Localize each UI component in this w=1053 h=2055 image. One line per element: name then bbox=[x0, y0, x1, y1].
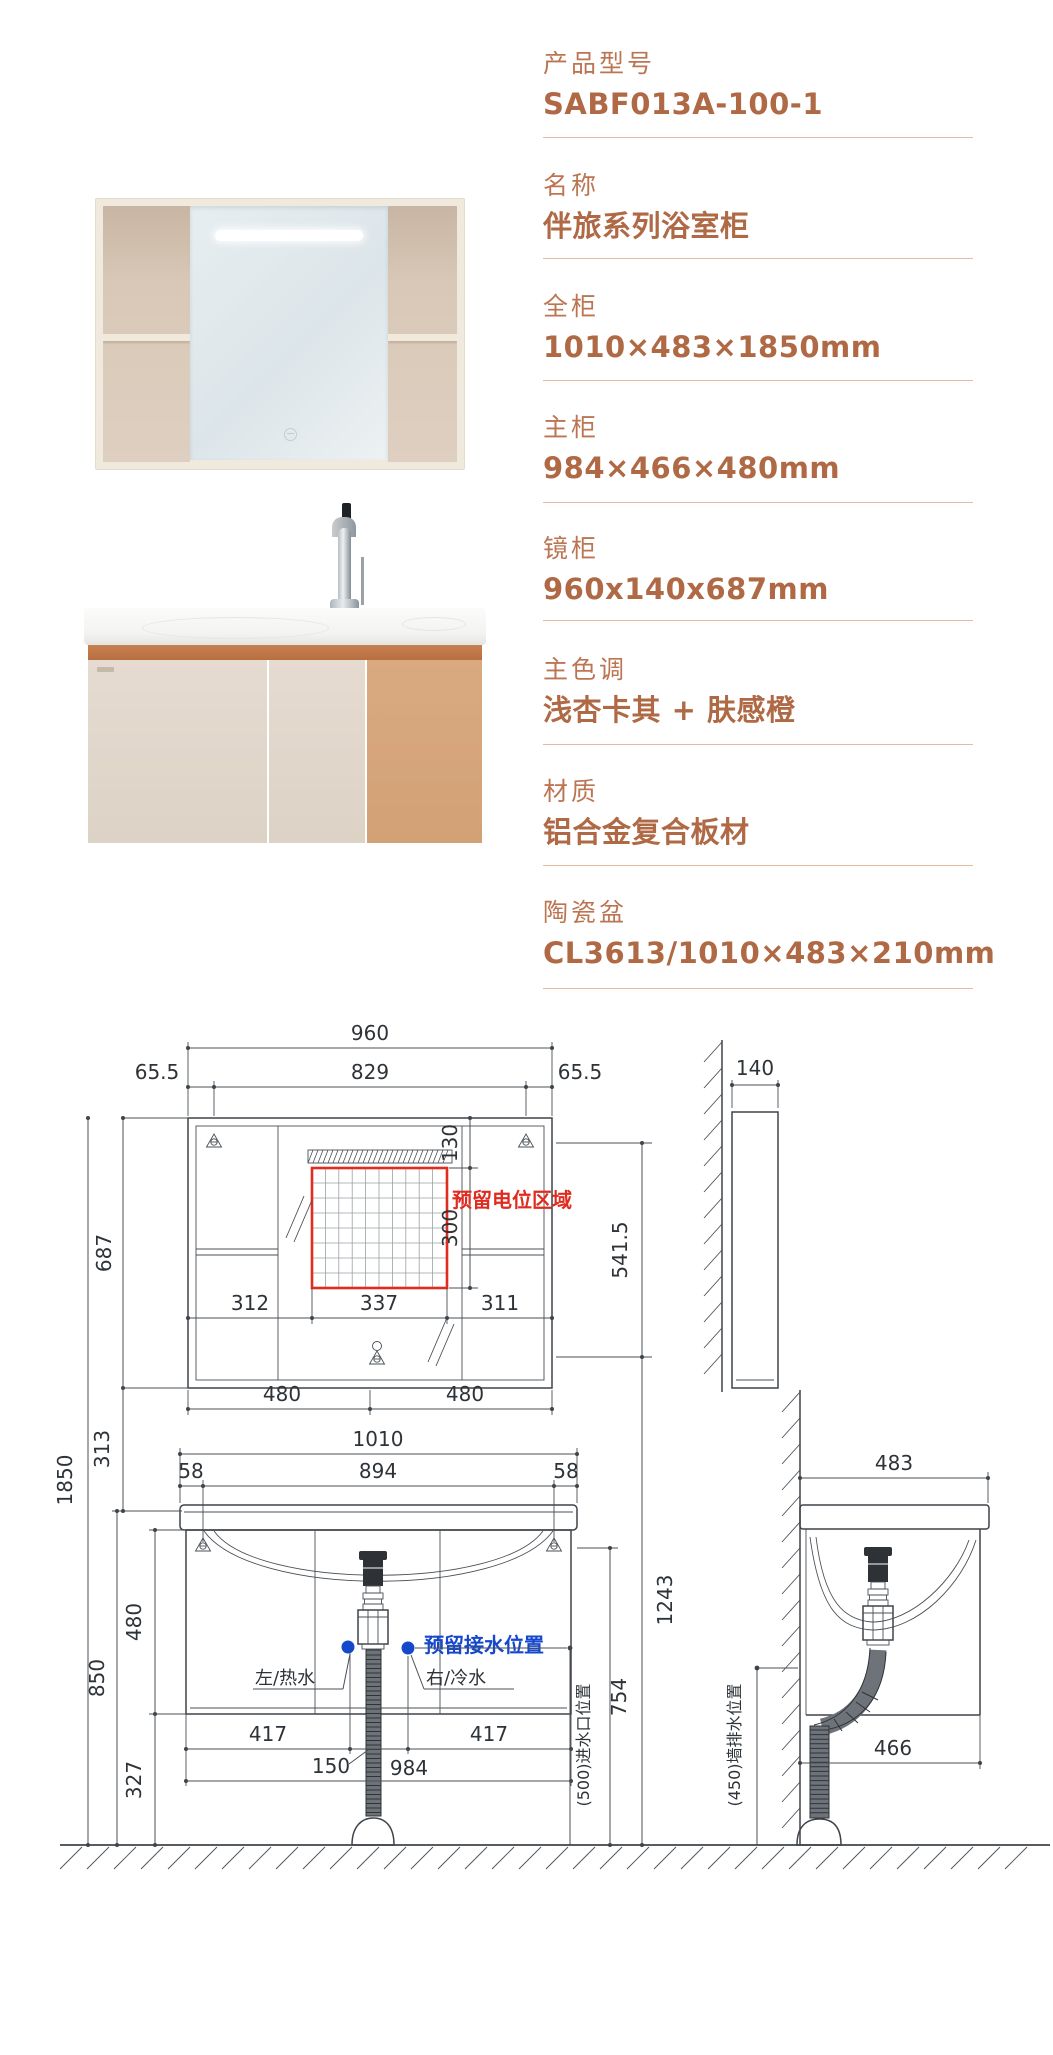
drain-assembly bbox=[863, 1547, 893, 1645]
mirror-cabinet-photo bbox=[95, 198, 465, 470]
spec-row-mirror-size: 镜柜 960x140x687mm bbox=[543, 535, 973, 621]
spec-label: 产品型号 bbox=[543, 50, 973, 79]
dim-bracket-left: 65.5 bbox=[135, 1060, 180, 1084]
dim-gap: 313 bbox=[90, 1430, 114, 1468]
wall-drain-label: (450)墙排水位置 bbox=[725, 1683, 744, 1806]
spec-value: 浅杏卡其 + 肤感橙 bbox=[543, 694, 973, 727]
spec-row-basin: 陶瓷盆 CL3613/1010×483×210mm bbox=[543, 899, 973, 989]
spec-label: 主色调 bbox=[543, 656, 973, 685]
dim-side-depth-bottom: 466 bbox=[874, 1736, 912, 1760]
spec-row-main-size: 主柜 984×466×480mm bbox=[543, 414, 973, 503]
mount-bracket-icon bbox=[207, 1134, 222, 1147]
inlet-position-label: (500)进水口位置 bbox=[574, 1683, 593, 1806]
spec-value: 铝合金复合板材 bbox=[543, 816, 973, 849]
vanity-side-view: 483 466 bbox=[782, 1390, 990, 1845]
reserved-electrical-zone bbox=[312, 1168, 447, 1288]
dim-seg-mid: 337 bbox=[360, 1291, 398, 1315]
product-spec-page: { "specs": { "accent": "#B4704E", "rows"… bbox=[0, 0, 1053, 2055]
vanity-front-view: 1010 58 894 58 左/热水 右/冷水 预留接水位置 bbox=[85, 1388, 798, 1847]
basin-outline bbox=[142, 617, 329, 639]
mirror-front-view bbox=[188, 1118, 552, 1388]
spec-label: 材质 bbox=[543, 778, 973, 807]
dim-outlet-height: 754 bbox=[607, 1678, 631, 1716]
mirror-led-light bbox=[215, 230, 363, 241]
dim-margin-right: 58 bbox=[553, 1459, 578, 1483]
dim-side-depth-top: 483 bbox=[875, 1451, 913, 1475]
faucet-body bbox=[338, 528, 351, 610]
spec-label: 名称 bbox=[543, 172, 973, 201]
brand-logo bbox=[97, 667, 114, 672]
dim-drain-offset: 150 bbox=[312, 1754, 350, 1778]
cold-water-label: 右/冷水 bbox=[426, 1668, 486, 1689]
mirror-left-shelves bbox=[103, 206, 190, 462]
hot-water-label: 左/热水 bbox=[255, 1668, 315, 1689]
spec-row-color: 主色调 浅杏卡其 + 肤感橙 bbox=[543, 656, 973, 745]
door-left bbox=[88, 660, 267, 843]
dim-half-left: 480 bbox=[263, 1382, 301, 1406]
cold-water-point bbox=[402, 1642, 415, 1655]
spec-value: 1010×483×1850mm bbox=[543, 331, 973, 364]
ceramic-countertop bbox=[84, 608, 486, 645]
hot-water-point bbox=[342, 1641, 355, 1654]
dim-led-gap: 130 bbox=[438, 1124, 462, 1162]
dim-mirror-height: 687 bbox=[92, 1234, 116, 1272]
floor-line bbox=[60, 1845, 1050, 1869]
vanity-cabinet-photo bbox=[80, 495, 490, 850]
spec-value: CL3613/1010×483×210mm bbox=[543, 937, 973, 970]
dim-body-width: 984 bbox=[390, 1756, 428, 1780]
dim-bracket-right: 65.5 bbox=[558, 1060, 603, 1084]
mirror-door bbox=[190, 206, 388, 460]
dim-mirror-depth: 140 bbox=[736, 1056, 774, 1080]
dim-drop: 541.5 bbox=[608, 1221, 632, 1278]
dim-foot-left: 417 bbox=[249, 1722, 287, 1746]
dim-mirror-width: 960 bbox=[351, 1021, 389, 1045]
dim-cabinet-height: 480 bbox=[122, 1603, 146, 1641]
dim-seg-right: 311 bbox=[481, 1291, 519, 1315]
dim-total-height: 1850 bbox=[53, 1455, 77, 1506]
dim-riser-height: 1243 bbox=[653, 1575, 677, 1626]
spec-value: SABF013A-100-1 bbox=[543, 88, 973, 121]
dim-counter-height: 850 bbox=[85, 1659, 109, 1697]
door-right-orange bbox=[367, 660, 482, 843]
dim-margin-left: 58 bbox=[178, 1459, 203, 1483]
mirror-right-shelves bbox=[388, 206, 457, 462]
spec-row-name: 名称 伴旅系列浴室柜 bbox=[543, 172, 973, 259]
reserved-electrical-label: 预留电位区域 bbox=[452, 1188, 572, 1212]
spec-row-model: 产品型号 SABF013A-100-1 bbox=[543, 50, 973, 138]
mirror-touch-switch-icon bbox=[284, 428, 297, 441]
dim-clearance: 327 bbox=[122, 1761, 146, 1799]
drain-assembly bbox=[358, 1551, 388, 1649]
shelf bbox=[103, 334, 190, 341]
dim-seg-left: 312 bbox=[231, 1291, 269, 1315]
door-middle bbox=[269, 660, 365, 843]
dim-vanity-width: 1010 bbox=[353, 1427, 404, 1451]
faucet-handle bbox=[361, 557, 364, 605]
dim-half-right: 480 bbox=[446, 1382, 484, 1406]
led-hatch bbox=[308, 1150, 448, 1163]
dim-foot-right: 417 bbox=[470, 1722, 508, 1746]
handle-strip bbox=[88, 645, 482, 660]
dim-mirror-inner: 829 bbox=[351, 1060, 389, 1084]
spec-label: 主柜 bbox=[543, 414, 973, 443]
spec-label: 镜柜 bbox=[543, 535, 973, 564]
spec-row-material: 材质 铝合金复合板材 bbox=[543, 778, 973, 866]
technical-drawing: 960 65.5 829 65.5 687 1850 130 300 312 3… bbox=[0, 990, 1053, 2055]
dim-zone-height: 300 bbox=[438, 1209, 462, 1247]
spec-value: 984×466×480mm bbox=[543, 452, 973, 485]
dim-vanity-inner: 894 bbox=[359, 1459, 397, 1483]
mount-bracket-icon bbox=[370, 1351, 385, 1364]
cabinet-doors bbox=[88, 660, 482, 843]
mount-bracket-icon bbox=[519, 1134, 534, 1147]
spec-label: 陶瓷盆 bbox=[543, 899, 973, 928]
spec-label: 全柜 bbox=[543, 293, 973, 322]
spec-value: 伴旅系列浴室柜 bbox=[543, 210, 973, 243]
shelf bbox=[388, 334, 457, 341]
soap-recess-outline bbox=[402, 617, 466, 631]
spec-value: 960x140x687mm bbox=[543, 573, 973, 606]
spec-row-full-size: 全柜 1010×483×1850mm bbox=[543, 293, 973, 381]
reserved-water-label: 预留接水位置 bbox=[424, 1633, 544, 1657]
